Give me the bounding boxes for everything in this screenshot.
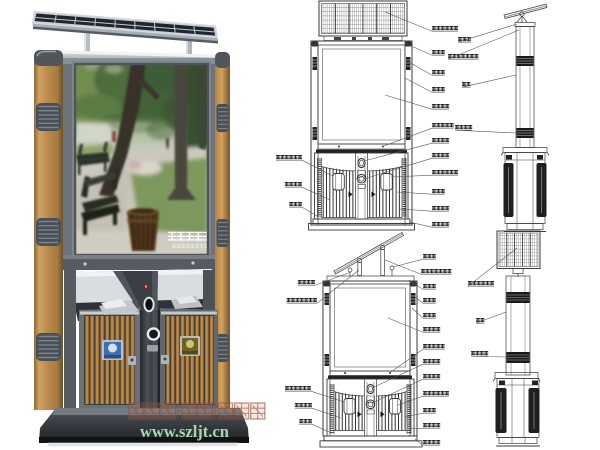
svg-text:www.szljt.cn: www.szljt.cn [140,422,229,441]
